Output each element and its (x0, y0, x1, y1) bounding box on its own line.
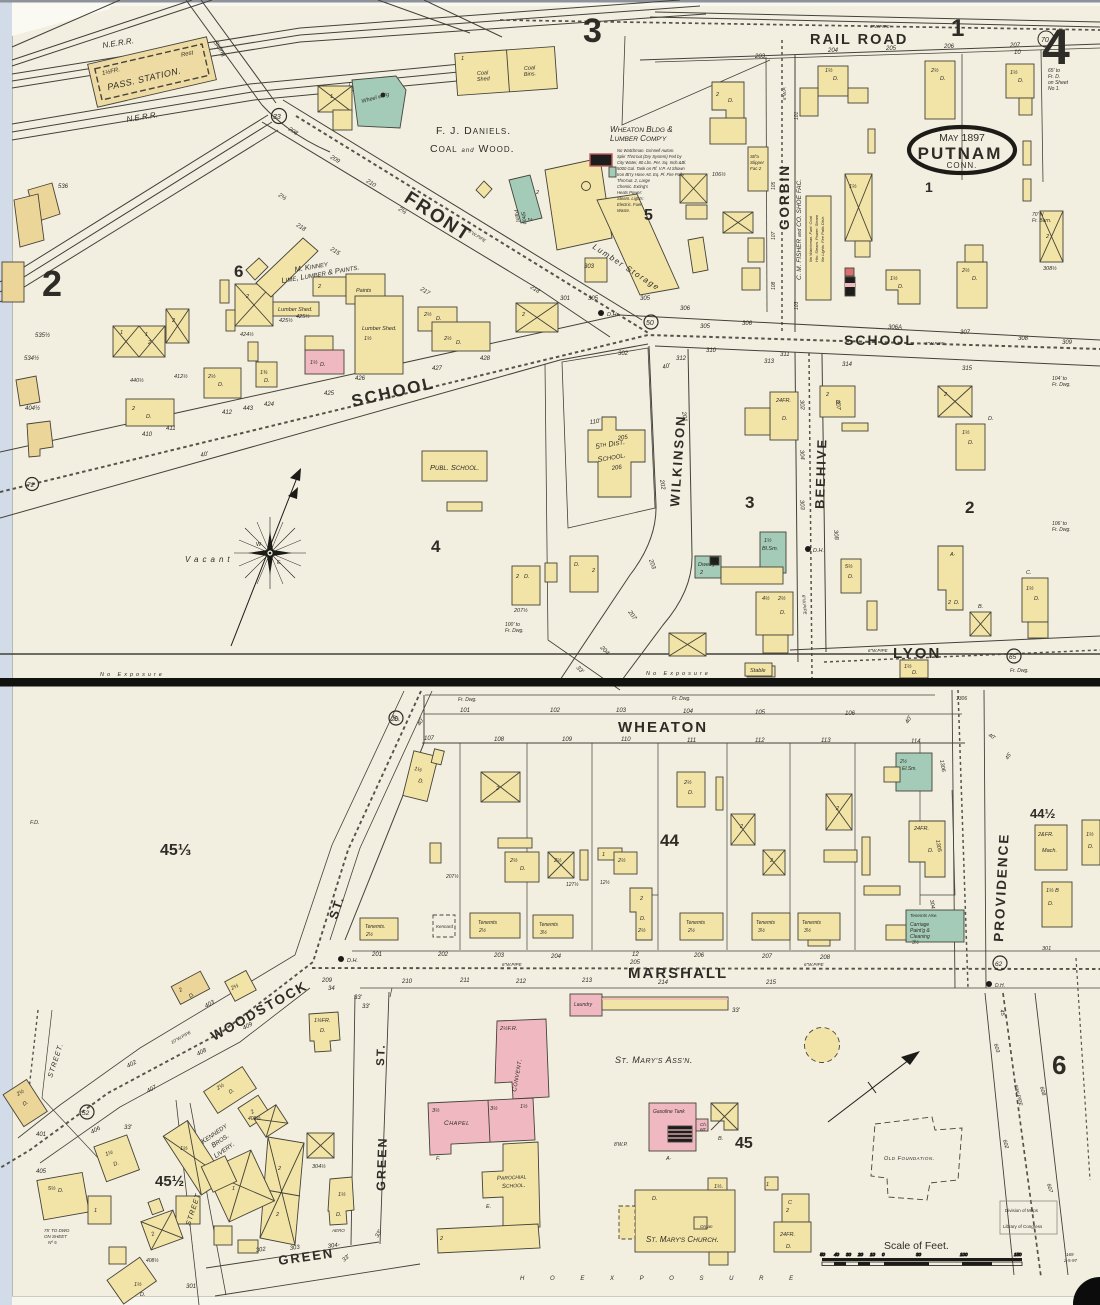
svg-text:E: E (277, 560, 281, 566)
svg-text:2½: 2½ (423, 311, 432, 318)
svg-text:D.: D. (640, 916, 646, 922)
svg-text:52: 52 (82, 1110, 90, 1117)
svg-text:303: 303 (584, 264, 595, 270)
svg-text:2½: 2½ (207, 373, 216, 380)
svg-text:127½: 127½ (566, 881, 579, 888)
svg-text:425½: 425½ (279, 317, 293, 324)
svg-text:Fr. Dwg.: Fr. Dwg. (672, 696, 691, 702)
svg-text:33': 33' (732, 1008, 741, 1014)
svg-text:LUMBER COMP'Y: LUMBER COMP'Y (610, 134, 667, 143)
svg-text:2: 2 (439, 1236, 443, 1242)
svg-text:3½: 3½ (758, 927, 766, 934)
svg-text:1½: 1½ (180, 1145, 188, 1152)
svg-text:1½: 1½ (849, 183, 857, 190)
svg-text:A·: A· (665, 1156, 672, 1162)
svg-text:2: 2 (639, 896, 643, 902)
svg-text:Paints: Paints (356, 288, 372, 294)
svg-text:F. J. DANIELS.: F. J. DANIELS. (436, 125, 511, 137)
svg-text:408½: 408½ (146, 1257, 159, 1264)
svg-text:535½: 535½ (35, 332, 50, 339)
svg-text:E.: E. (486, 1204, 491, 1210)
svg-text:D.: D. (218, 382, 224, 388)
svg-text:2: 2 (785, 1208, 789, 1214)
svg-text:MARSHALL: MARSHALL (628, 965, 728, 982)
svg-text:408½: 408½ (248, 1115, 261, 1122)
svg-text:102: 102 (550, 708, 561, 714)
svg-text:6"W.PIPE: 6"W.PIPE (502, 962, 523, 967)
svg-text:2: 2 (739, 824, 743, 830)
svg-text:207½: 207½ (513, 607, 528, 614)
svg-text:3½: 3½ (912, 939, 920, 946)
svg-text:10: 10 (1014, 50, 1021, 56)
svg-text:D.: D. (954, 600, 960, 606)
svg-text:ON SHEET: ON SHEET (44, 1234, 68, 1239)
svg-text:1½: 1½ (134, 1281, 142, 1288)
svg-text:306A: 306A (888, 325, 902, 331)
svg-text:202: 202 (437, 952, 449, 958)
svg-text:427: 427 (432, 366, 443, 372)
svg-text:2½: 2½ (683, 779, 692, 786)
svg-text:1: 1 (461, 56, 464, 62)
svg-text:Bl.Sm.: Bl.Sm. (762, 546, 778, 552)
svg-text:D.: D. (780, 610, 786, 616)
svg-text:310: 310 (706, 348, 717, 354)
svg-text:D.: D. (140, 1292, 146, 1298)
svg-text:24FR.: 24FR. (913, 826, 929, 832)
svg-text:1: 1 (330, 94, 333, 100)
svg-text:2½: 2½ (478, 927, 487, 934)
svg-text:D.: D. (940, 76, 946, 82)
svg-text:6"W.PIPE: 6"W.PIPE (804, 962, 825, 967)
svg-text:Organ: Organ (700, 1224, 713, 1229)
svg-text:No Lights. Fire Pails Distr.: No Lights. Fire Pails Distr. (820, 216, 825, 262)
svg-text:20: 20 (857, 1252, 864, 1257)
svg-text:D.: D. (574, 562, 580, 568)
svg-text:2: 2 (147, 340, 151, 346)
svg-text:72: 72 (27, 482, 35, 489)
svg-text:F.D.: F.D. (30, 820, 40, 826)
svg-text:Scale of Feet.: Scale of Feet. (884, 1240, 949, 1252)
svg-text:6"W.PIPE: 6"W.PIPE (868, 648, 889, 653)
svg-text:CONN.: CONN. (947, 161, 978, 170)
svg-text:534½: 534½ (24, 355, 39, 362)
svg-text:SCHOOL.: SCHOOL. (502, 1183, 526, 1190)
svg-text:206: 206 (693, 953, 705, 959)
svg-text:Fr. Dwg.: Fr. Dwg. (458, 697, 477, 703)
svg-text:No Watchman. Grinnell Autom.: No Watchman. Grinnell Autom. (617, 148, 674, 153)
svg-text:425: 425 (324, 391, 335, 397)
svg-text:GORBIN: GORBIN (777, 164, 792, 230)
svg-text:1½: 1½ (1026, 585, 1034, 592)
svg-text:12½: 12½ (600, 879, 611, 886)
svg-text:D.: D. (520, 866, 526, 872)
svg-text:2½: 2½ (509, 857, 518, 864)
svg-text:Shed: Shed (477, 76, 491, 83)
svg-text:212: 212 (515, 979, 527, 985)
svg-text:33': 33' (354, 995, 363, 1001)
svg-text:2: 2 (965, 498, 974, 517)
svg-text:1½: 1½ (364, 335, 372, 342)
svg-text:Thro'out. 2, Large: Thro'out. 2, Large (617, 178, 651, 183)
svg-text:D.H.: D.H. (813, 548, 824, 554)
svg-text:315: 315 (962, 366, 973, 372)
svg-text:33: 33 (273, 114, 281, 121)
svg-text:B.: B. (718, 1136, 723, 1142)
svg-text:H O E X P O S U R E: H O E X P O S U R E (520, 1276, 805, 1282)
svg-text:D.H.: D.H. (607, 312, 618, 318)
svg-text:2: 2 (943, 392, 947, 398)
svg-text:1¼FR.: 1¼FR. (314, 1018, 331, 1024)
svg-text:1½: 1½ (520, 1103, 528, 1110)
svg-text:2: 2 (277, 1166, 281, 1172)
svg-text:1½ B: 1½ B (1046, 887, 1059, 894)
svg-text:10: 10 (870, 1252, 876, 1257)
svg-text:No Exposure: No Exposure (100, 672, 165, 678)
svg-text:D.: D. (1034, 596, 1040, 602)
svg-text:1½: 1½ (962, 429, 970, 436)
svg-text:D.: D. (264, 378, 270, 384)
svg-text:40: 40 (834, 1252, 840, 1257)
svg-text:412: 412 (222, 410, 233, 416)
svg-text:1: 1 (925, 179, 933, 195)
svg-text:2½: 2½ (553, 857, 562, 864)
svg-text:114: 114 (911, 739, 921, 745)
svg-text:Gasoline Tank: Gasoline Tank (653, 1109, 685, 1115)
svg-text:1½: 1½ (1010, 69, 1018, 76)
svg-text:City Water, 80 Lbs. Per. Sq. I: City Water, 80 Lbs. Per. Sq. Inch.&Bl. (617, 160, 686, 165)
svg-text:1½: 1½ (338, 1191, 346, 1198)
svg-text:307: 307 (960, 330, 971, 336)
svg-text:105: 105 (755, 710, 766, 716)
svg-text:314: 314 (842, 362, 853, 368)
svg-text:1¾: 1¾ (260, 370, 268, 376)
svg-text:301: 301 (560, 296, 570, 302)
svg-text:211: 211 (459, 978, 470, 984)
svg-text:203: 203 (493, 953, 505, 959)
svg-text:2½: 2½ (961, 267, 970, 274)
svg-text:D.: D. (988, 416, 994, 422)
svg-text:Stf'a: Stf'a (750, 154, 759, 159)
svg-text:100: 100 (960, 1252, 968, 1257)
svg-text:D.: D. (320, 1028, 326, 1034)
svg-text:2½: 2½ (617, 857, 626, 864)
svg-text:2: 2 (835, 806, 839, 812)
svg-text:205: 205 (629, 960, 641, 966)
svg-text:Tenemts: Tenemts (686, 920, 705, 926)
svg-text:Tenemts: Tenemts (478, 920, 497, 926)
svg-text:2&FR.: 2&FR. (1037, 832, 1054, 838)
svg-text:2½: 2½ (687, 927, 696, 934)
svg-text:201: 201 (371, 952, 382, 958)
svg-text:D.: D. (652, 1196, 658, 1202)
svg-text:Laundry: Laundry (574, 1002, 593, 1008)
svg-text:113: 113 (821, 738, 831, 744)
svg-text:Waste.: Waste. (617, 208, 630, 213)
svg-text:2: 2 (947, 600, 951, 606)
svg-text:30: 30 (916, 1252, 922, 1257)
svg-text:45: 45 (735, 1135, 753, 1152)
svg-text:426: 426 (355, 376, 366, 382)
svg-text:SCHOOL: SCHOOL (844, 332, 916, 348)
svg-text:6"W.PIPE: 6"W.PIPE (925, 341, 946, 346)
svg-text:207½: 207½ (445, 873, 459, 880)
svg-text:Library of Congress: Library of Congress (1003, 1224, 1043, 1229)
svg-text:305: 305 (700, 324, 711, 330)
svg-text:D.H.: D.H. (995, 983, 1005, 989)
svg-text:D.: D. (58, 1188, 64, 1194)
svg-text:1½: 1½ (904, 663, 912, 670)
svg-text:F.: F. (436, 1156, 440, 1162)
svg-text:2½: 2½ (637, 927, 646, 934)
svg-text:50: 50 (646, 320, 654, 327)
svg-text:ST. MARY'S CHURCH.: ST. MARY'S CHURCH. (646, 1235, 719, 1244)
svg-text:Fr. Barn.: Fr. Barn. (1032, 218, 1051, 224)
svg-text:6: 6 (234, 262, 243, 281)
svg-text:106½: 106½ (712, 171, 726, 178)
svg-text:1: 1 (145, 332, 148, 338)
svg-text:2: 2 (715, 92, 719, 98)
svg-text:101: 101 (460, 708, 470, 714)
svg-text:2: 2 (495, 786, 499, 792)
svg-text:D.: D. (912, 670, 918, 676)
svg-text:306: 306 (742, 321, 753, 327)
svg-text:2: 2 (825, 392, 829, 398)
svg-text:2½: 2½ (899, 758, 908, 765)
svg-text:Slipper: Slipper (750, 160, 765, 165)
svg-text:Tenemts.: Tenemts. (365, 924, 385, 930)
svg-text:C.: C. (1026, 570, 1032, 576)
svg-text:303: 303 (798, 500, 805, 511)
svg-text:208: 208 (819, 955, 831, 961)
svg-text:Tenemts: Tenemts (756, 920, 775, 926)
svg-text:50: 50 (820, 1252, 826, 1257)
svg-text:1½: 1½ (310, 359, 318, 366)
svg-text:6"W.P.: 6"W.P. (782, 87, 787, 100)
svg-text:305: 305 (588, 296, 599, 302)
svg-text:75' TO DWG: 75' TO DWG (44, 1228, 70, 1233)
svg-text:3½: 3½ (540, 929, 548, 936)
svg-text:1½: 1½ (825, 67, 833, 74)
svg-text:1: 1 (766, 1182, 769, 1188)
svg-text:Heats Power:: Heats Power: (617, 190, 642, 195)
svg-text:3½: 3½ (490, 1105, 498, 1112)
svg-text:El.Sm.: El.Sm. (902, 766, 917, 772)
svg-text:304½: 304½ (312, 1163, 326, 1170)
svg-text:CHAPEL: CHAPEL (444, 1120, 470, 1127)
svg-text:Lumber Shed.: Lumber Shed. (362, 326, 397, 332)
svg-text:Fr. Dwg.: Fr. Dwg. (1010, 668, 1029, 674)
svg-text:401: 401 (36, 1132, 46, 1138)
svg-text:169: 169 (1066, 1252, 1074, 1257)
svg-text:D.: D. (336, 1212, 342, 1218)
svg-text:108: 108 (771, 281, 777, 290)
svg-text:60': 60' (700, 1127, 706, 1132)
svg-text:207: 207 (1009, 43, 1021, 49)
svg-text:1306: 1306 (956, 696, 967, 702)
svg-text:Chemic. Exting's: Chemic. Exting's (617, 184, 649, 189)
svg-text:108: 108 (494, 737, 505, 743)
svg-text:Tenemts: Tenemts (539, 922, 558, 928)
svg-text:1: 1 (602, 852, 605, 858)
svg-text:Kennard: Kennard (436, 924, 454, 929)
svg-text:111: 111 (687, 738, 696, 744)
svg-text:C. M. FISHER and CO. SHOE FAC.: C. M. FISHER and CO. SHOE FAC. (796, 179, 803, 280)
svg-text:20: 20 (390, 716, 399, 723)
svg-text:Fr. Dwg.: Fr. Dwg. (505, 628, 524, 634)
svg-text:304: 304 (798, 450, 805, 461)
svg-text:D.: D. (728, 98, 734, 104)
svg-text:33': 33' (362, 1004, 371, 1010)
svg-text:Dwell'y: Dwell'y (698, 562, 716, 568)
svg-text:103: 103 (794, 301, 800, 310)
svg-text:536: 536 (58, 184, 69, 190)
svg-text:D.: D. (968, 440, 974, 446)
svg-text:2½F.R.: 2½F.R. (499, 1025, 517, 1032)
svg-text:D.: D. (836, 400, 842, 406)
svg-text:2: 2 (535, 190, 539, 196)
svg-text:Nº 5: Nº 5 (48, 1240, 57, 1245)
svg-text:62: 62 (995, 961, 1003, 968)
svg-text:D.: D. (436, 316, 442, 322)
svg-text:424: 424 (264, 402, 275, 408)
svg-text:C: C (788, 1200, 792, 1206)
svg-text:2: 2 (699, 570, 703, 576)
svg-text:2: 2 (42, 263, 62, 304)
svg-text:4: 4 (431, 537, 441, 556)
svg-text:AERO: AERO (331, 1228, 345, 1233)
svg-text:Division of Maps: Division of Maps (1005, 1208, 1039, 1213)
svg-text:No Exposure: No Exposure (646, 671, 711, 677)
svg-text:410: 410 (142, 432, 153, 438)
svg-text:44: 44 (660, 831, 679, 850)
svg-text:109: 109 (562, 737, 573, 743)
svg-text:BEEHIVE: BEEHIVE (812, 438, 829, 510)
svg-text:428: 428 (480, 356, 491, 362)
svg-text:D.: D. (898, 284, 904, 290)
svg-text:Fac 2: Fac 2 (750, 166, 762, 171)
svg-text:2: 2 (317, 284, 321, 290)
svg-text:D.: D. (688, 790, 694, 796)
svg-text:24FR.: 24FR. (775, 398, 791, 404)
svg-text:2½: 2½ (777, 595, 786, 602)
svg-text:2: 2 (131, 406, 135, 412)
svg-text:2: 2 (591, 568, 595, 574)
svg-text:D.: D. (786, 1244, 792, 1250)
svg-text:302: 302 (618, 351, 629, 357)
svg-text:301: 301 (186, 1284, 196, 1290)
svg-text:5000 Gal. Tank on Rf. V.P. At: 5000 Gal. Tank on Rf. V.P. At Shown (617, 166, 685, 171)
svg-text:105: 105 (771, 181, 777, 190)
svg-text:D.: D. (146, 414, 152, 420)
svg-text:312: 312 (676, 356, 687, 362)
svg-text:WHEATON: WHEATON (618, 719, 708, 736)
svg-text:424½: 424½ (240, 331, 254, 338)
svg-text:Fr. Dwg.: Fr. Dwg. (1052, 382, 1071, 388)
svg-text:D.: D. (1018, 78, 1024, 84)
svg-text:6: 6 (1052, 1050, 1066, 1080)
svg-text:214: 214 (657, 980, 669, 986)
svg-text:MAY 1897: MAY 1897 (939, 132, 985, 144)
svg-text:404½: 404½ (25, 405, 40, 412)
svg-text:306: 306 (680, 306, 691, 312)
svg-text:D.: D. (928, 848, 934, 854)
svg-text:12: 12 (632, 952, 639, 958)
svg-text:WHEATON BLDG &: WHEATON BLDG & (610, 125, 673, 134)
svg-text:B.: B. (978, 604, 983, 610)
svg-text:112: 112 (755, 738, 765, 744)
svg-text:Iron Bt'ry Hose Att. Eq. Pl. F: Iron Bt'ry Hose Att. Eq. Pl. Fire Pails (617, 172, 685, 177)
svg-text:443: 443 (243, 406, 254, 412)
svg-text:Tenemts Hse.: Tenemts Hse. (910, 913, 938, 918)
svg-text:1½: 1½ (1086, 831, 1094, 838)
svg-text:2: 2 (245, 294, 249, 300)
svg-text:106: 106 (845, 711, 856, 717)
svg-text:5½: 5½ (845, 563, 853, 570)
svg-text:2: 2 (275, 1212, 279, 1218)
svg-text:3: 3 (745, 493, 754, 512)
svg-text:2: 2 (1045, 234, 1049, 240)
svg-text:204: 204 (827, 48, 839, 54)
svg-text:5: 5 (644, 207, 653, 224)
svg-text:5½: 5½ (48, 1185, 56, 1192)
svg-text:D.: D. (972, 276, 978, 282)
svg-text:Fr. Dwg.: Fr. Dwg. (1052, 527, 1071, 533)
svg-text:411: 411 (166, 426, 176, 432)
svg-text:425½: 425½ (296, 313, 310, 320)
svg-text:ST.: ST. (375, 1043, 388, 1066)
svg-text:308: 308 (1018, 336, 1029, 342)
svg-text:D.: D. (524, 574, 530, 580)
svg-text:101: 101 (794, 111, 800, 120)
svg-text:65: 65 (1009, 654, 1017, 661)
svg-text:No Watchman. Fuel: Coal: No Watchman. Fuel: Coal (808, 216, 813, 262)
svg-text:150: 150 (1014, 1252, 1022, 1257)
svg-text:107: 107 (424, 736, 435, 742)
svg-text:308½: 308½ (1043, 265, 1057, 272)
svg-text:309: 309 (1062, 340, 1073, 346)
svg-text:Hts: Steam. Power: Steam: Hts: Steam. Power: Steam (814, 214, 819, 262)
svg-text:311: 311 (780, 352, 790, 358)
svg-text:LYON: LYON (893, 645, 941, 662)
svg-text:302: 302 (798, 400, 805, 411)
svg-text:D.: D. (1048, 901, 1054, 907)
svg-text:205: 205 (885, 46, 897, 52)
svg-text:Bins.: Bins. (524, 71, 537, 78)
svg-text:2: 2 (171, 318, 175, 324)
svg-text:D.: D. (782, 416, 788, 422)
svg-text:2-5-97: 2-5-97 (1063, 1258, 1078, 1263)
svg-text:2½: 2½ (365, 931, 374, 938)
svg-text:1½.: 1½. (714, 1183, 723, 1190)
svg-text:W: W (256, 542, 262, 548)
svg-text:2½: 2½ (930, 67, 939, 74)
svg-text:6"W.PIPE: 6"W.PIPE (870, 24, 891, 29)
svg-text:3½: 3½ (804, 927, 812, 934)
svg-text:1: 1 (94, 1208, 97, 1214)
svg-text:207: 207 (761, 954, 773, 960)
svg-text:Electric. Fuel:: Electric. Fuel: (617, 202, 642, 207)
svg-text:34: 34 (328, 986, 335, 992)
svg-text:3: 3 (583, 12, 602, 50)
svg-text:8'W.P.: 8'W.P. (614, 1142, 628, 1148)
svg-text:A·: A· (949, 552, 956, 558)
svg-text:103: 103 (616, 708, 627, 714)
svg-text:104: 104 (683, 709, 694, 715)
svg-text:2½: 2½ (443, 335, 452, 342)
svg-text:2: 2 (521, 312, 525, 318)
svg-text:313: 313 (764, 359, 775, 365)
svg-text:405: 405 (36, 1169, 47, 1175)
